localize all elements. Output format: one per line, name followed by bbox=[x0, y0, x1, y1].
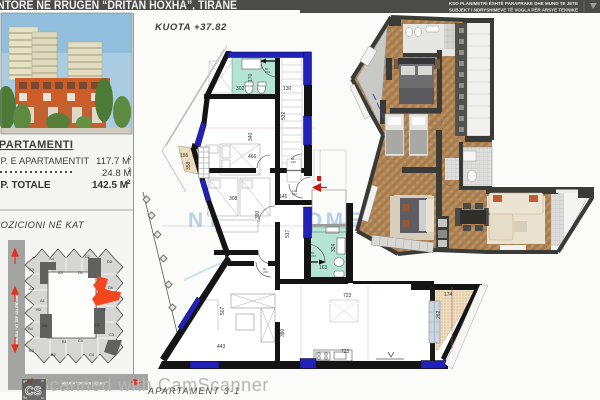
svg-text:B3: B3 bbox=[29, 348, 34, 353]
svg-text:220: 220 bbox=[263, 270, 268, 274]
svg-text:723: 723 bbox=[343, 293, 352, 299]
svg-text:APARTAMENTI: APARTAMENTI bbox=[0, 139, 73, 151]
svg-text:KSO PLANIMETRI ÉSHTË PARAPRAKE: KSO PLANIMETRI ÉSHTË PARAPRAKE DHE MUND … bbox=[449, 0, 578, 6]
svg-text:302: 302 bbox=[236, 86, 245, 92]
svg-text:723: 723 bbox=[341, 349, 350, 355]
svg-text:220: 220 bbox=[292, 192, 297, 196]
svg-text:B6: B6 bbox=[42, 323, 47, 328]
svg-text:D1: D1 bbox=[78, 270, 83, 275]
svg-text:POZICIONI NË KAT: POZICIONI NË KAT bbox=[0, 219, 85, 230]
svg-text:522: 522 bbox=[281, 111, 287, 120]
svg-text:B4: B4 bbox=[28, 326, 34, 331]
svg-text:C4: C4 bbox=[89, 352, 95, 357]
svg-text:A5: A5 bbox=[58, 270, 63, 275]
svg-text:155: 155 bbox=[180, 153, 189, 159]
svg-text:A2: A2 bbox=[29, 286, 34, 291]
svg-text:C3: C3 bbox=[109, 332, 114, 337]
svg-text:P. E APARTAMENTIT: P. E APARTAMENTIT bbox=[1, 156, 90, 166]
svg-text:145: 145 bbox=[279, 194, 288, 200]
svg-text:C5: C5 bbox=[78, 338, 83, 343]
svg-text:C1: C1 bbox=[95, 322, 100, 327]
svg-text:RRUGA “AT ZEF VALENTINI”: RRUGA “AT ZEF VALENTINI” bbox=[15, 294, 19, 344]
svg-text:220: 220 bbox=[291, 160, 296, 164]
svg-text:CS: CS bbox=[25, 384, 42, 398]
svg-text:R5: R5 bbox=[36, 307, 41, 312]
svg-text:324: 324 bbox=[331, 243, 337, 252]
svg-text:A1: A1 bbox=[40, 298, 45, 303]
svg-text:170: 170 bbox=[248, 73, 254, 82]
svg-text:D3: D3 bbox=[107, 259, 112, 264]
svg-text:D2: D2 bbox=[85, 254, 90, 259]
svg-text:A4: A4 bbox=[49, 256, 55, 261]
svg-text:308: 308 bbox=[229, 196, 238, 202]
svg-text:KUOTA +37.82: KUOTA +37.82 bbox=[155, 22, 227, 33]
svg-text:443: 443 bbox=[217, 344, 226, 350]
svg-text:B2: B2 bbox=[51, 352, 56, 357]
svg-text:117.7 M: 117.7 M bbox=[96, 156, 130, 167]
svg-text:2: 2 bbox=[127, 179, 131, 186]
svg-text:174: 174 bbox=[444, 292, 453, 298]
svg-text:APARTAMENT 3-1: APARTAMENT 3-1 bbox=[147, 386, 240, 396]
svg-text:A3: A3 bbox=[29, 267, 34, 272]
svg-text:390: 390 bbox=[255, 210, 261, 219]
svg-text:130: 130 bbox=[283, 86, 292, 92]
svg-text:358: 358 bbox=[186, 161, 192, 170]
svg-text:380: 380 bbox=[280, 328, 286, 337]
svg-text:262: 262 bbox=[436, 310, 442, 319]
svg-text:163: 163 bbox=[319, 265, 328, 271]
svg-text:C2: C2 bbox=[101, 307, 106, 312]
svg-text:142.5 M: 142.5 M bbox=[92, 180, 128, 191]
svg-text:B1: B1 bbox=[62, 339, 67, 344]
svg-text:466: 466 bbox=[248, 154, 257, 160]
svg-text:24.8 M: 24.8 M bbox=[102, 168, 131, 179]
svg-text:340: 340 bbox=[248, 132, 254, 141]
svg-text:D6: D6 bbox=[108, 285, 113, 290]
svg-text:507: 507 bbox=[220, 306, 226, 315]
svg-text:220: 220 bbox=[265, 70, 270, 74]
svg-text:NTORE NE RRUGEN “DRITAN HOXHA”: NTORE NE RRUGEN “DRITAN HOXHA”, TIRANE bbox=[0, 0, 237, 12]
svg-text:P. TOTALE: P. TOTALE bbox=[1, 180, 51, 191]
svg-text:SUBJEKT I NDRYSHIMEVE TË VOGLA: SUBJEKT I NDRYSHIMEVE TË VOGLA PËR ARSYE… bbox=[449, 7, 578, 13]
svg-text:517: 517 bbox=[285, 229, 291, 238]
svg-text:220: 220 bbox=[311, 254, 316, 258]
